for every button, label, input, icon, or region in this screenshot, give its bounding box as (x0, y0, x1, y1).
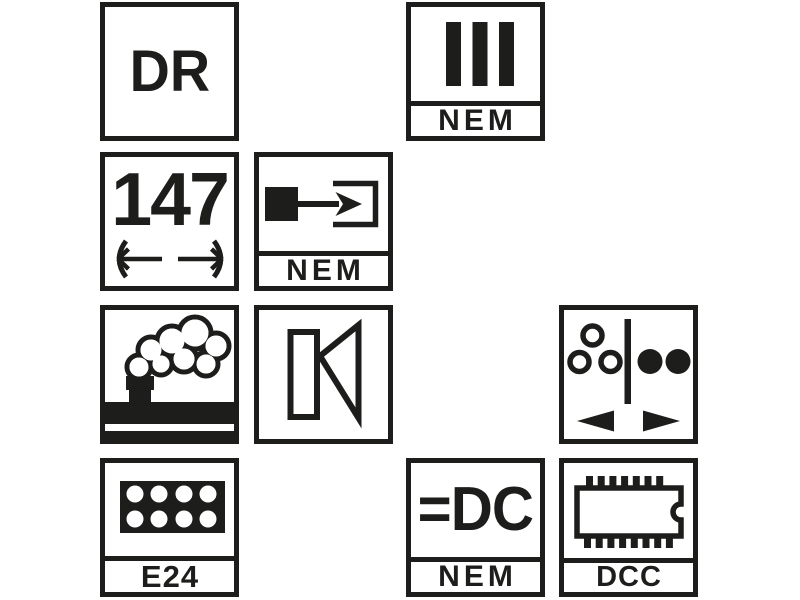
interface-label: E24 (105, 556, 234, 592)
coupler-standard-label: NEM (259, 251, 388, 286)
pictogram-railway-company: DR (100, 2, 239, 141)
pictogram-coupler-pocket: NEM (254, 152, 393, 291)
era-standard-label: NEM (411, 101, 540, 136)
pictogram-directional-lighting (559, 305, 698, 444)
speaker-icon (259, 310, 388, 439)
pictogram-sheet: DR NEM 147 (0, 0, 800, 600)
dcc-chip-icon (564, 463, 693, 558)
epoch-three-bars-icon (411, 7, 540, 101)
decoder-label: DCC (564, 558, 693, 592)
pictogram-sound (254, 305, 393, 444)
pictogram-era: NEM (406, 2, 545, 141)
pictogram-power-system: =DC NEM (406, 458, 545, 597)
e24-socket-icon (105, 463, 234, 556)
pictogram-electrical-interface: E24 (100, 458, 239, 597)
pictogram-decoder: DCC (559, 458, 698, 597)
directional-lighting-change-icon (564, 310, 693, 439)
power-standard-label: NEM (411, 557, 540, 592)
buffer-length-arrows-icon (107, 238, 233, 280)
pictogram-smoke-generator (100, 305, 239, 444)
railway-company-label: DR (129, 43, 209, 101)
length-value-label: 147 (111, 169, 228, 231)
smoke-generator-icon (105, 310, 234, 439)
power-system-label: =DC (418, 479, 533, 541)
coupler-pocket-arrow-icon (259, 157, 388, 251)
pictogram-length-over-buffers: 147 (100, 152, 239, 291)
